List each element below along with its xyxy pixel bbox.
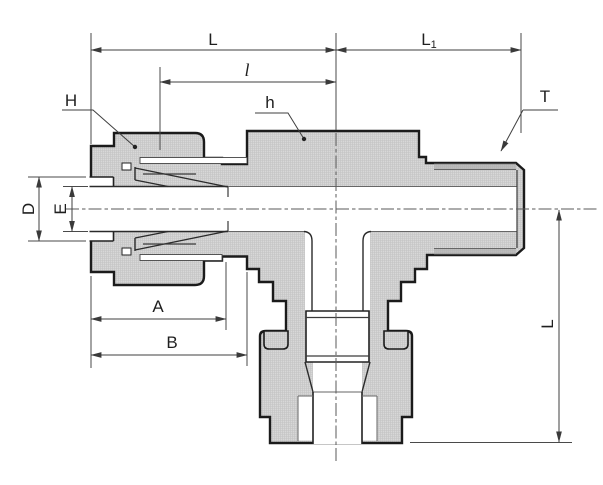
fitting-section-drawing: L L1 l H h T D E A B L [0,0,603,485]
thread-tab-right [384,331,408,349]
ferrule-notch-bottom [122,248,131,255]
label-l: l [244,60,249,80]
thread-shading-top [434,164,516,170]
label-A: A [152,297,164,316]
label-T: T [540,87,550,106]
label-E: E [51,203,70,214]
branch-bore [305,231,370,311]
label-L-run: L [208,30,217,49]
thread-tab-left [264,331,288,349]
leader-T [501,110,523,151]
label-L1: L1 [421,30,437,51]
thread-shading-bottom [434,249,516,255]
thread-gap-bottom [140,255,222,261]
label-L-branch: L [538,319,557,328]
label-h: h [265,93,274,112]
branch-tube [313,362,362,444]
label-H: H [65,91,77,110]
label-B: B [166,333,177,352]
drawing-canvas: L L1 l H h T D E A B L [0,0,603,485]
label-D: D [19,203,38,215]
ferrule-notch-top [122,163,131,170]
thread-gap-top [140,158,247,164]
